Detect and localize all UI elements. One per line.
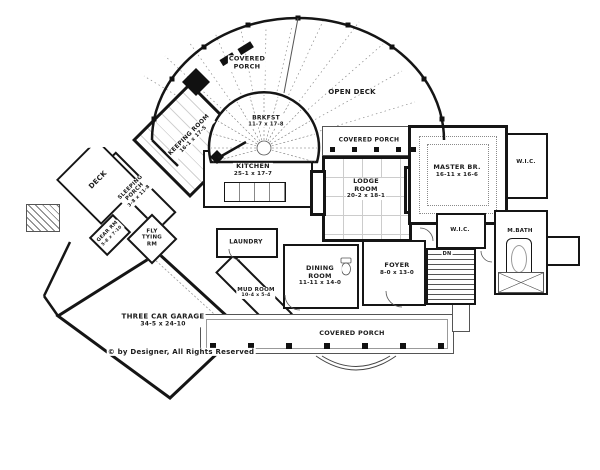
keeping-chimney [182, 68, 210, 96]
turret-center [257, 141, 271, 155]
label-wic-lower: W.I.C. [449, 227, 470, 233]
label-covered-porch-right: COVERED PORCH [338, 136, 401, 143]
label-mud-room: MUD ROOM 10-4 x 5-4 [236, 287, 275, 299]
overlay-linework [0, 0, 600, 470]
porch-deck-divider [284, 18, 298, 93]
label-mbath: M.BATH [506, 228, 533, 234]
label-wic-upper: W.I.C. [515, 159, 536, 165]
label-master: MASTER BR. 16-11 x 16-6 [432, 164, 481, 178]
label-open-deck: OPEN DECK [327, 88, 377, 96]
label-foyer: FOYER 8-0 x 13-0 [379, 262, 415, 276]
label-garage: THREE CAR GARAGE 34-5 x 24-10 [121, 312, 206, 327]
entry-curved-steps [316, 356, 396, 370]
label-dn: DN [442, 252, 453, 258]
toilet [341, 258, 351, 275]
label-brkfst: BRKFST 11-7 x 17-8 [247, 114, 284, 127]
copyright-notice: © by Designer, All Rights Reserved [107, 348, 256, 356]
label-covered-porch-top: COVERED PORCH [228, 55, 266, 70]
label-lodge: LODGE ROOM 20-2 x 18-1 [346, 178, 386, 200]
label-kitchen: KITCHEN 25-1 x 17-7 [233, 163, 273, 177]
label-laundry: LAUNDRY [228, 238, 264, 245]
label-dining: DINING ROOM 11-11 x 14-0 [298, 265, 342, 287]
floor-plan: COVERED PORCH OPEN DECK BRKFST 11-7 x 17… [0, 0, 600, 470]
label-fly-tying: FLY TYING RM [141, 228, 163, 247]
label-covered-porch-bottom: COVERED PORCH [318, 330, 385, 338]
